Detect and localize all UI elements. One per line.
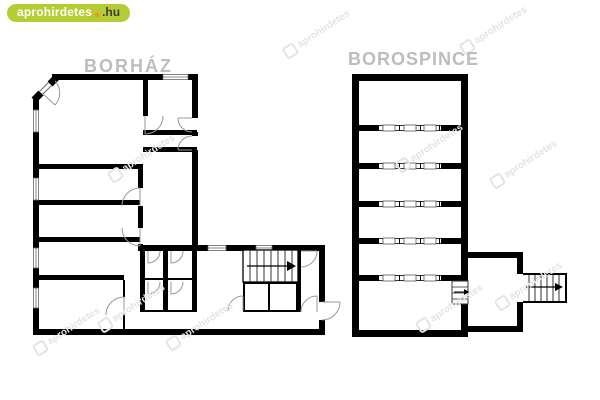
borhaz-floorplan: [33, 74, 340, 335]
borhaz-windows: [34, 75, 273, 309]
logo-orange-dot-icon: [95, 13, 99, 17]
borospince-pillar-rows: [359, 125, 461, 281]
pillar-row: [359, 163, 461, 169]
logo-brand-text: aprohirdetes: [17, 6, 92, 19]
pillar-row: [359, 275, 461, 281]
logo-tld-text: .hu: [102, 6, 120, 19]
aprohirdetes-logo[interactable]: aprohirdetes.hu: [7, 4, 130, 22]
borhaz-entrance-door-arc: [322, 302, 340, 320]
borhaz-staircase: [243, 250, 298, 282]
borhaz-chamfer-corner: [34, 77, 60, 105]
borhaz-title: BORHÁZ: [84, 56, 173, 77]
borospince-title: BOROSPINCE: [348, 49, 479, 70]
borhaz-door-arcs: [106, 116, 317, 315]
borospince-floorplan: [352, 74, 567, 337]
borhaz-walls: [33, 74, 325, 335]
floorplan-listing-image: aprohirdetes.hu BORHÁZ BOROSPINCE aprohi…: [0, 0, 600, 400]
pillar-row: [359, 201, 461, 207]
pillar-row: [359, 238, 461, 244]
pillar-row: [359, 125, 461, 131]
borospince-cellar-staircase: [452, 281, 469, 304]
borospince-outdoor-staircase: [523, 273, 567, 303]
borospince-annex: [461, 252, 523, 332]
